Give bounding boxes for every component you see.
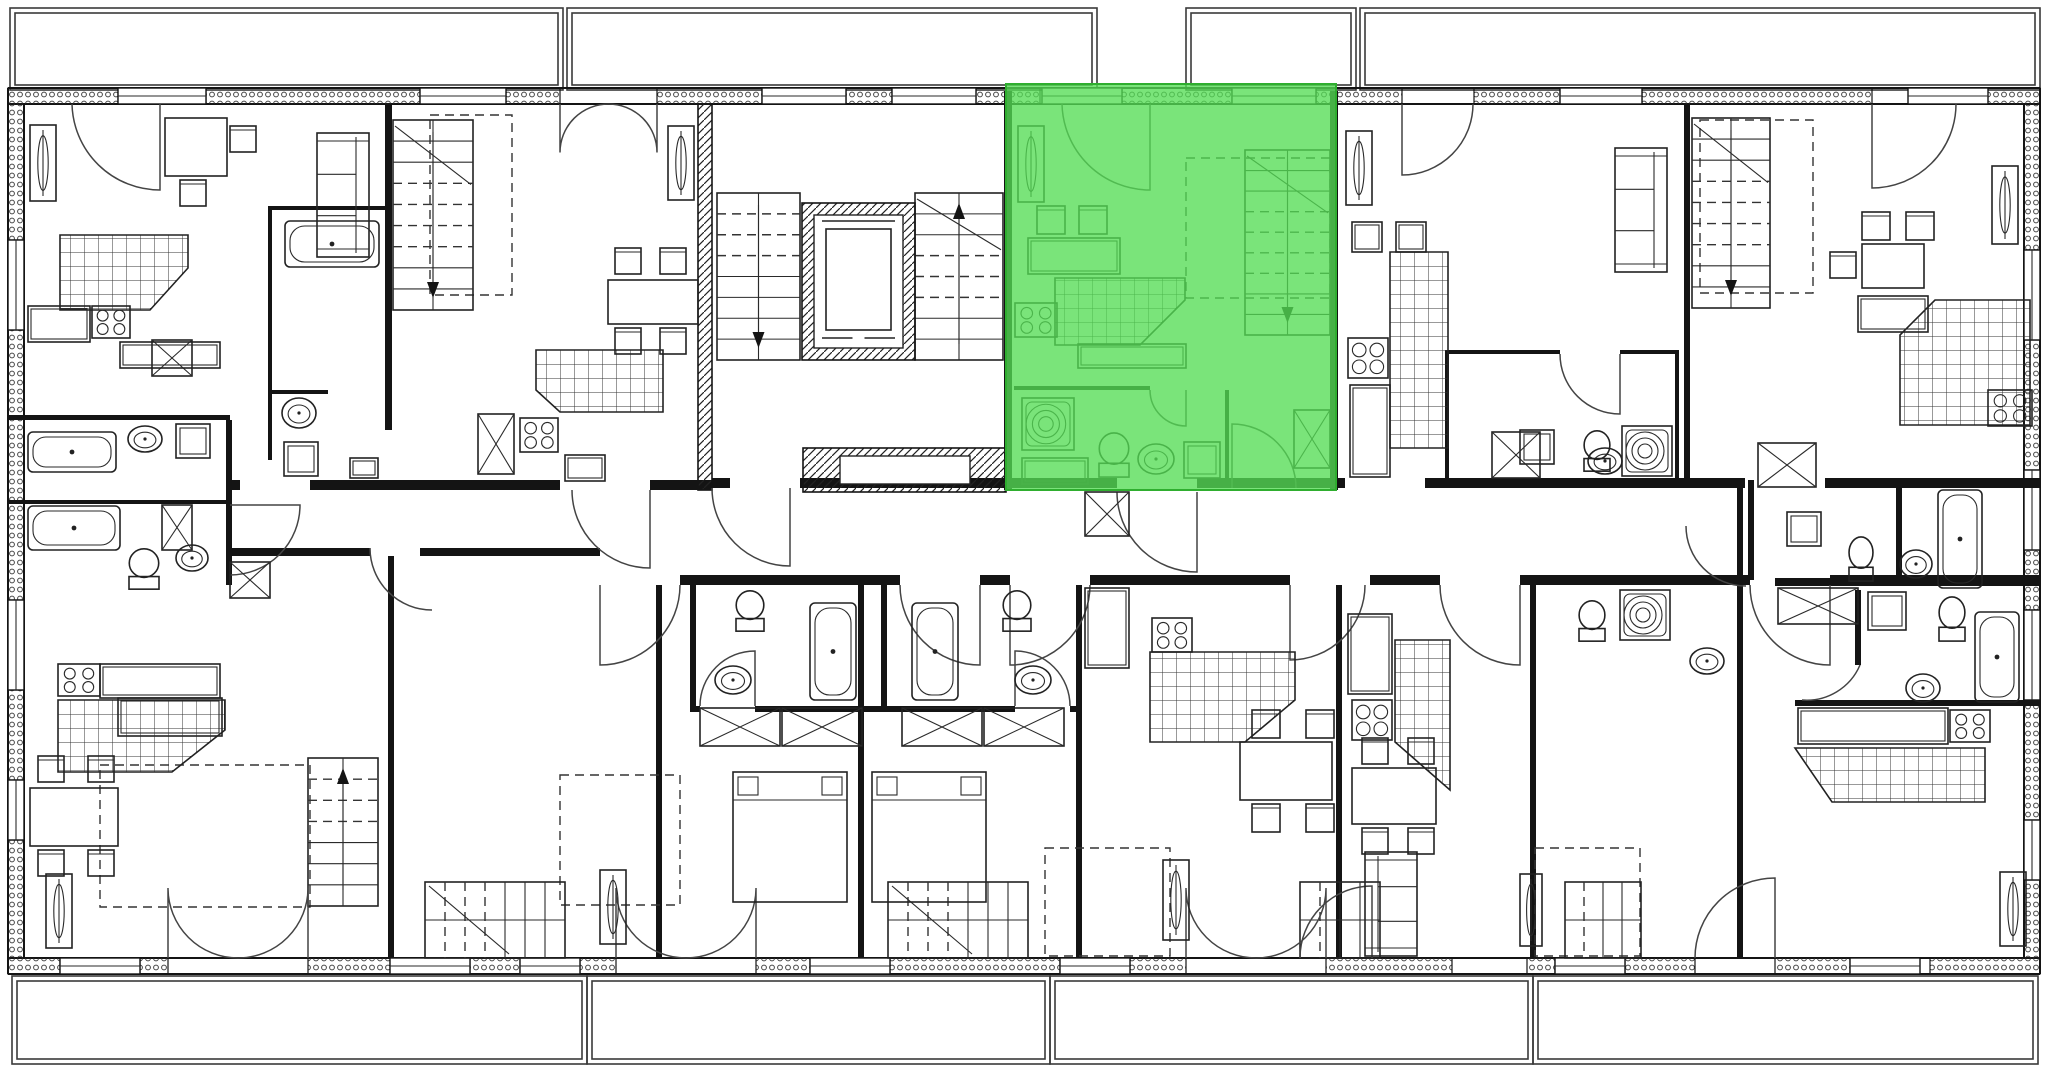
burner [1370,343,1384,357]
stove-symbol [1152,618,1192,652]
pillow [738,777,758,795]
counter-symbol [28,306,90,342]
chair-symbol [88,850,114,876]
exterior-wall-insulation [657,88,762,104]
wall [268,390,328,394]
toilet-symbol [1584,431,1610,471]
exterior-wall-insulation [846,88,892,104]
exterior-wall-insulation [140,958,168,974]
table-top [1352,768,1436,824]
burner [114,310,125,321]
burner [1352,360,1366,374]
counter-inner [123,345,217,365]
bed-outline [733,772,847,902]
toilet-bowl [1003,591,1031,620]
exterior-wall-insulation [2024,700,2040,820]
toilet-symbol [1003,591,1031,631]
chair-symbol [615,248,641,274]
wardrobe-symbol [30,125,56,201]
wall [1620,350,1679,354]
stair-arrow [753,332,765,348]
wall [881,585,887,710]
burner [525,422,537,434]
burner [64,682,75,693]
table-top [30,788,118,846]
wall [1449,350,1560,354]
toilet-bowl [1579,601,1605,630]
balcony [1186,8,1356,90]
exterior-wall-insulation [1527,958,1555,974]
chair-symbol [1906,212,1934,240]
wall [1684,104,1690,478]
staircase [717,193,800,360]
balcony-inner [15,13,558,85]
shower-spiral [1638,444,1652,458]
burner [1973,728,1984,739]
wall [230,480,240,490]
counter-outline [100,664,220,698]
chair-symbol [660,248,686,274]
floor-plan-page [0,0,2048,1070]
table-symbol [30,788,118,846]
drain [933,649,938,654]
counter-symbol [1085,588,1129,668]
wall [1675,350,1679,478]
toilet-bowl [1849,537,1873,568]
counter-outline [1348,614,1392,694]
exterior-wall-insulation [8,690,24,780]
wall [858,585,864,958]
pillow [877,777,897,795]
path [1186,888,1256,958]
toilet-symbol [1849,537,1873,581]
stove-outline [1352,700,1392,740]
balcony-inner [1191,13,1351,85]
sink-symbol [1015,666,1051,694]
stair-arrow [953,203,965,219]
counter-symbol [1798,708,1948,744]
washer-symbol [1868,592,1906,630]
door-swing [712,488,790,566]
counter-symbol [1352,222,1382,252]
appliance-inner [288,446,314,472]
drain [1958,537,1963,542]
toilet-symbol [1939,597,1965,641]
drain [731,678,734,681]
table-top [1240,742,1332,800]
burner [1157,622,1169,634]
selected-unit-overlay[interactable] [1006,84,1336,490]
chair-symbol [1862,212,1890,240]
sofa-outline [317,133,369,257]
stove-outline [1348,338,1388,378]
wall [268,206,389,210]
drain [190,556,193,559]
balcony-inner [1538,981,2033,1059]
exterior-wall-insulation [8,958,60,974]
counter-outline [120,342,220,368]
door-swing [370,548,432,610]
counter-symbol [1350,385,1390,477]
xbox-symbol [230,562,270,598]
balcony-inner [1365,13,2035,85]
burner [1956,714,1967,725]
sofa-symbol [1365,852,1417,956]
counter-symbol [100,664,220,698]
balcony [567,8,1097,90]
balcony [1050,976,1533,1064]
balcony [12,976,587,1064]
drain [72,526,77,531]
tub-symbol [285,221,379,267]
chair-symbol [1830,252,1856,278]
toilet-bowl [1584,431,1610,460]
door-swing [230,505,300,575]
path [686,888,756,958]
wall [8,500,230,504]
counter-outline [565,455,605,481]
burner [97,324,108,335]
counter-inner [103,667,217,695]
wardrobe-symbol [600,870,626,944]
appliance-outline [176,424,210,458]
exterior-wall-insulation [2024,104,2040,250]
exterior-wall-insulation [308,958,390,974]
counter-inner [1399,225,1423,249]
chair-symbol [1408,828,1434,854]
drain [1031,678,1034,681]
counter-inner [568,458,602,478]
table-top [165,118,227,176]
wall [690,706,700,712]
kitchen-counter-grid [1900,300,2030,425]
path [560,104,609,153]
burner [1356,722,1370,736]
door-swing [1290,585,1365,660]
washer-symbol [176,424,210,458]
burner [1374,705,1388,719]
shower-spiral [1632,438,1658,464]
toilet-tank [129,577,159,590]
wall [712,478,730,488]
burner [1356,705,1370,719]
door-swing [600,585,680,665]
shower-spiral [1636,608,1650,622]
highlight-layer [1006,84,1336,490]
sink-symbol [1588,448,1622,474]
exterior-wall-insulation [1474,88,1560,104]
burner [1973,714,1984,725]
counter-symbol [1396,222,1426,252]
sink-symbol [282,398,316,428]
double-door [1186,888,1326,958]
stove-symbol [58,664,100,696]
wall [1070,706,1080,712]
exterior-wall-insulation [8,330,24,600]
chair-symbol [1252,804,1280,832]
door-swing [572,490,650,568]
appliance-inner [1524,434,1550,460]
kitchen-counter-grid [1795,748,1985,802]
stove-symbol [1352,700,1392,740]
exterior-wall-insulation [1930,958,2040,974]
burner [542,422,554,434]
sofa-symbol [317,133,369,257]
chair-symbol [1306,710,1334,738]
counter-symbol [350,458,378,478]
wall [420,548,600,556]
stove-outline [520,418,558,452]
burner [1370,360,1384,374]
toilet-bowl [129,549,158,578]
counter-outline [28,306,90,342]
chair-symbol [1362,828,1388,854]
wardrobe-symbol [2000,872,2026,946]
exterior-wall-insulation [1775,958,1850,974]
upper-floor-outline [1535,848,1640,956]
elevator-shaft-inner [814,215,903,348]
balcony [1533,976,2038,1064]
double-door [168,888,308,958]
staircase [1692,118,1770,308]
door-swing [1402,104,1473,175]
kitchen-counter-grid [60,235,188,310]
chair-symbol [660,328,686,354]
counter-inner [1351,617,1389,691]
chair-symbol [1362,738,1388,764]
exterior-wall-insulation [8,104,24,240]
drain [70,450,75,455]
counter-inner [1088,591,1126,665]
wall [385,104,392,430]
counter-outline [1350,385,1390,477]
wardrobe-symbol [1520,874,1542,946]
upper-floor-outline [100,765,310,907]
wall [1370,575,1440,585]
path [168,888,238,958]
balcony-inner [592,981,1045,1059]
staircase [888,882,1028,958]
xbox-symbol [1778,588,1858,624]
washer-symbol [284,442,318,476]
counter-outline [1396,222,1426,252]
floor-plan-canvas [0,0,2048,1070]
toilet-tank [1939,627,1965,641]
wardrobe-symbol [46,874,72,948]
drain [1705,659,1708,662]
toilet-tank [1003,619,1031,632]
door-swing [72,104,160,190]
xbox-symbol [782,708,862,746]
burner [1157,637,1169,649]
burner [542,437,554,449]
upper-floor-outline [1700,120,1813,293]
door-swing [1695,878,1775,958]
exterior-wall-insulation [8,840,24,958]
tub-symbol [28,432,116,472]
appliance-inner [1791,516,1817,542]
wall [1748,480,1754,580]
staircase [915,193,1003,360]
drain [297,411,300,414]
exterior-wall-insulation [1326,958,1452,974]
wall [1520,575,1750,585]
exterior-wall-insulation [1625,958,1695,974]
counter-outline [1085,588,1129,668]
exterior-wall-insulation [8,88,118,104]
drain [1995,655,2000,660]
chair-symbol [38,850,64,876]
counter-inner [1801,711,1945,741]
burner [64,668,75,679]
kitchen-counter-grid [536,350,663,412]
table-symbol [1352,768,1436,824]
wall [1825,478,2040,488]
counter-outline [1798,708,1948,744]
stair-arrow [337,768,349,784]
wall [1076,585,1082,958]
sink-symbol [1900,550,1932,578]
sofa-outline [1365,852,1417,956]
pillow [822,777,842,795]
staircase [425,882,565,958]
table-symbol [1240,742,1332,800]
drain [143,437,146,440]
burner [525,437,537,449]
wardrobe-symbol [668,126,694,200]
appliance-outline [284,442,318,476]
wall [680,575,900,585]
sink-symbol [1690,648,1724,674]
table-top [608,280,698,324]
shower-symbol [1622,426,1672,476]
exterior-wall-insulation [1642,88,1872,104]
elevator-layer [802,203,915,360]
appliance-outline [1868,592,1906,630]
wall [1425,478,1745,488]
balcony [587,976,1050,1064]
table-symbol [165,118,227,176]
elevator [802,203,915,360]
wall [1896,480,1902,580]
kitchen-counter-grid [1150,652,1295,742]
table-symbol [1862,244,1924,288]
burner [1175,622,1187,634]
exterior-wall-insulation [580,958,616,974]
sink-symbol [715,666,751,694]
wall [8,415,230,420]
wall [388,556,394,958]
table-symbol [608,280,698,324]
tub-symbol [1938,490,1982,588]
wall [268,206,272,460]
washer-symbol [1787,512,1821,546]
appliance-inner [180,428,206,454]
toilet-bowl [1939,597,1965,628]
wall [1090,575,1290,585]
drain [330,242,335,247]
burner [97,310,108,321]
staircase [1565,882,1641,958]
door-swing [1015,651,1070,706]
counter-inner [31,309,87,339]
table-top [1862,244,1924,288]
wall [1775,578,2040,586]
wall [310,480,560,490]
sink-symbol [128,426,162,452]
double-door [616,888,756,958]
xbox-symbol [1758,443,1816,487]
upper-floor-outline [1045,848,1170,956]
door-swing [1560,354,1620,414]
xbox-symbol [700,708,780,746]
counter-symbol [120,342,220,368]
xbox-symbol [1492,432,1540,478]
sofa-symbol [1615,148,1667,272]
shower-spiral [1630,602,1656,628]
counter-inner [1353,388,1387,474]
hatched-wall [698,104,712,490]
toilet-tank [1579,629,1605,642]
drain [1603,459,1606,462]
tub-symbol [810,603,856,700]
xbox-symbol [902,708,982,746]
stove-symbol [1348,338,1388,378]
tub-symbol [28,506,120,550]
counter-outline [1352,222,1382,252]
pillow [961,777,981,795]
balcony-inner [1055,981,1528,1059]
burner [1374,722,1388,736]
shower-symbol [1620,590,1670,640]
balcony-inner [572,13,1092,85]
door-swing [700,651,755,706]
counter-symbol [565,455,605,481]
sink-symbol [1906,674,1940,702]
tub-symbol [1975,612,2019,702]
door-swing [1750,585,1830,665]
kitchen-counter-grid [1390,252,1448,448]
drain [1921,686,1924,689]
wall [980,575,1010,585]
double-door [560,104,657,153]
exterior-wall-insulation [756,958,810,974]
toilet-symbol [1579,601,1605,641]
wardrobe-symbol [1163,860,1189,940]
staircase [393,120,473,310]
tub-symbol [912,603,958,700]
burner [1956,728,1967,739]
xbox-symbol [162,505,192,550]
toilet-symbol [736,591,764,631]
path [1256,888,1326,958]
chair-symbol [1306,804,1334,832]
burner [1175,637,1187,649]
counter-symbol [1348,614,1392,694]
door-swing [1872,104,1956,188]
balcony [10,8,563,90]
stove-outline [58,664,100,696]
drain [831,649,836,654]
burner [114,324,125,335]
staircase [308,758,378,906]
xbox-symbol [478,414,514,474]
stove-symbol [1950,710,1990,742]
toilet-bowl [736,591,764,620]
burner [83,682,94,693]
exterior-wall-insulation [506,88,560,104]
upper-level-dashed-layer [100,115,1813,956]
